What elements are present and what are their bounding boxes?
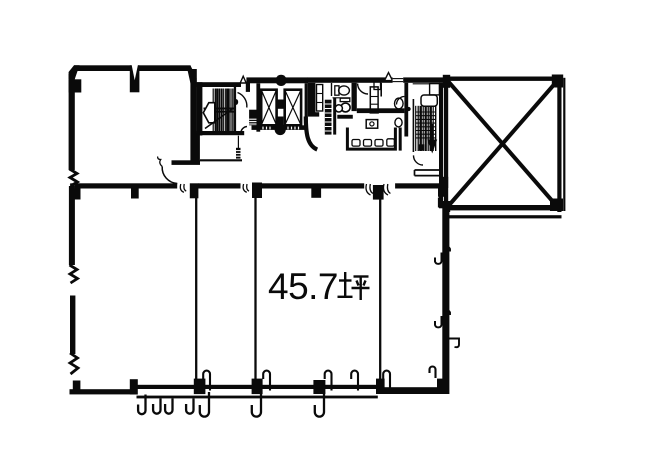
svg-text:45.7: 45.7 [268, 266, 338, 307]
